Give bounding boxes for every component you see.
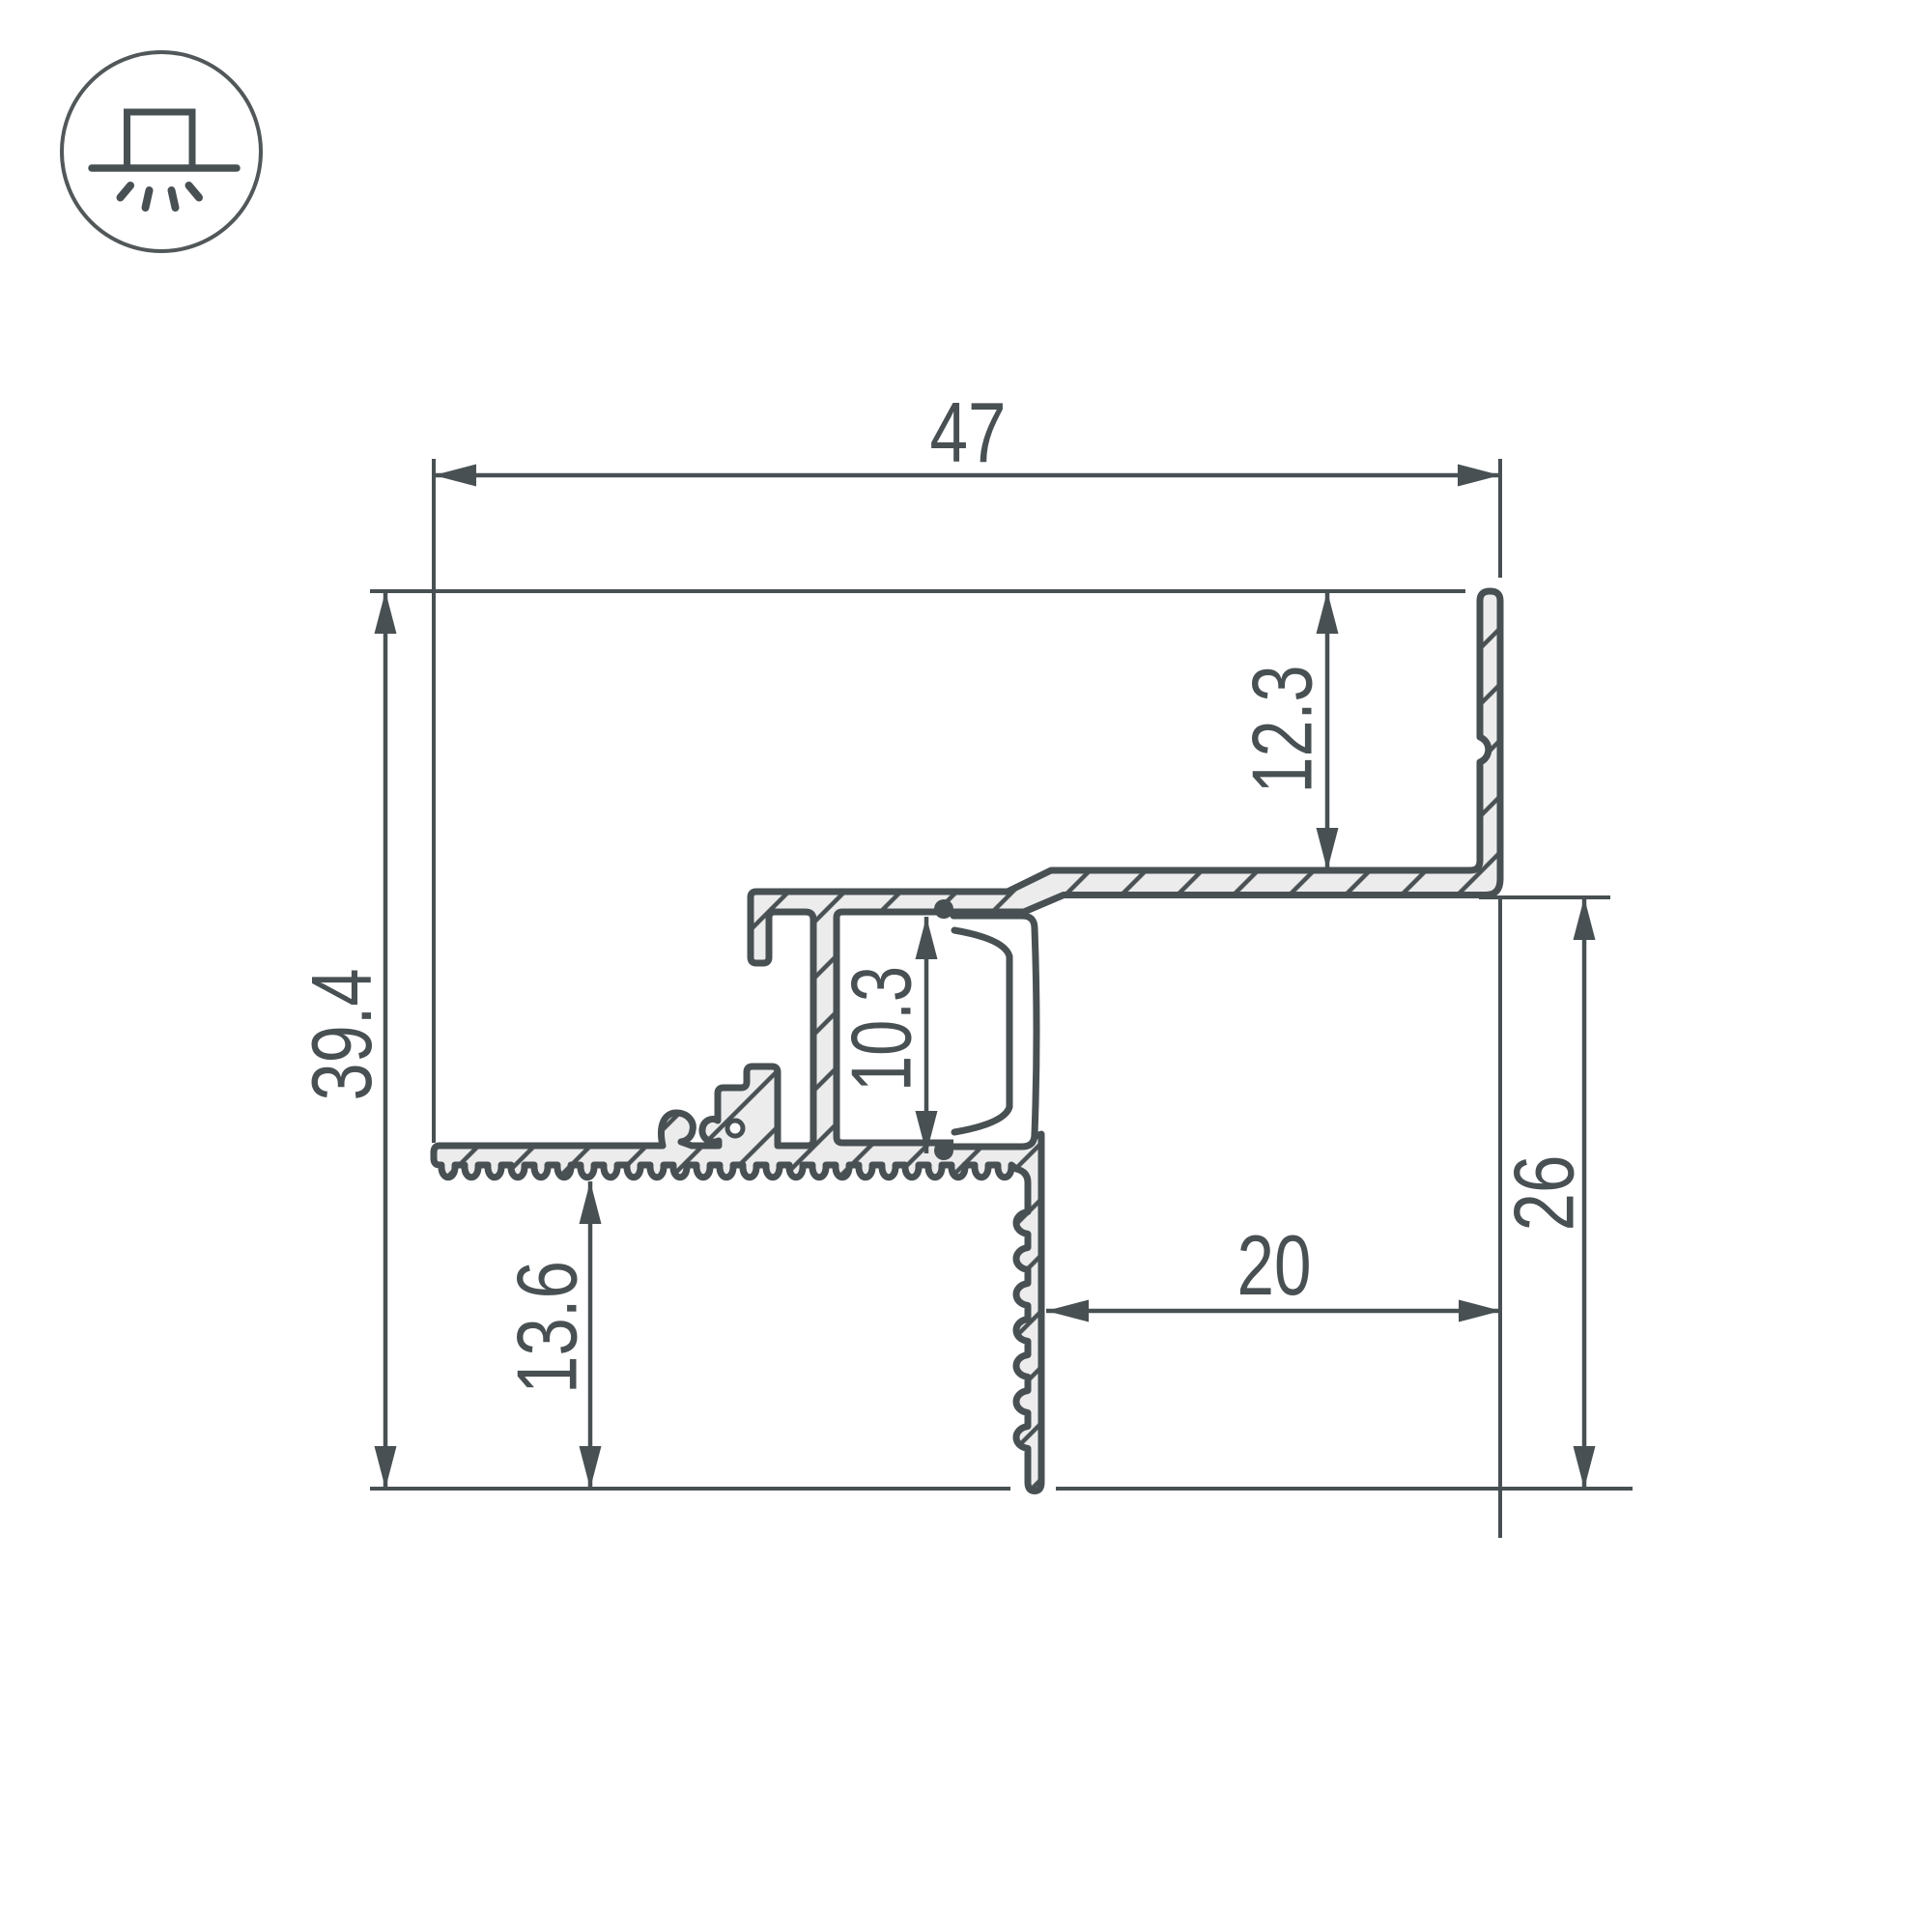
svg-text:12.3: 12.3 — [1235, 666, 1330, 794]
svg-text:20: 20 — [1237, 1217, 1312, 1313]
svg-text:26: 26 — [1496, 1155, 1592, 1232]
svg-text:13.6: 13.6 — [499, 1261, 595, 1394]
svg-text:10.3: 10.3 — [834, 966, 929, 1092]
svg-text:47: 47 — [930, 384, 1007, 480]
svg-text:39.4: 39.4 — [294, 969, 389, 1101]
